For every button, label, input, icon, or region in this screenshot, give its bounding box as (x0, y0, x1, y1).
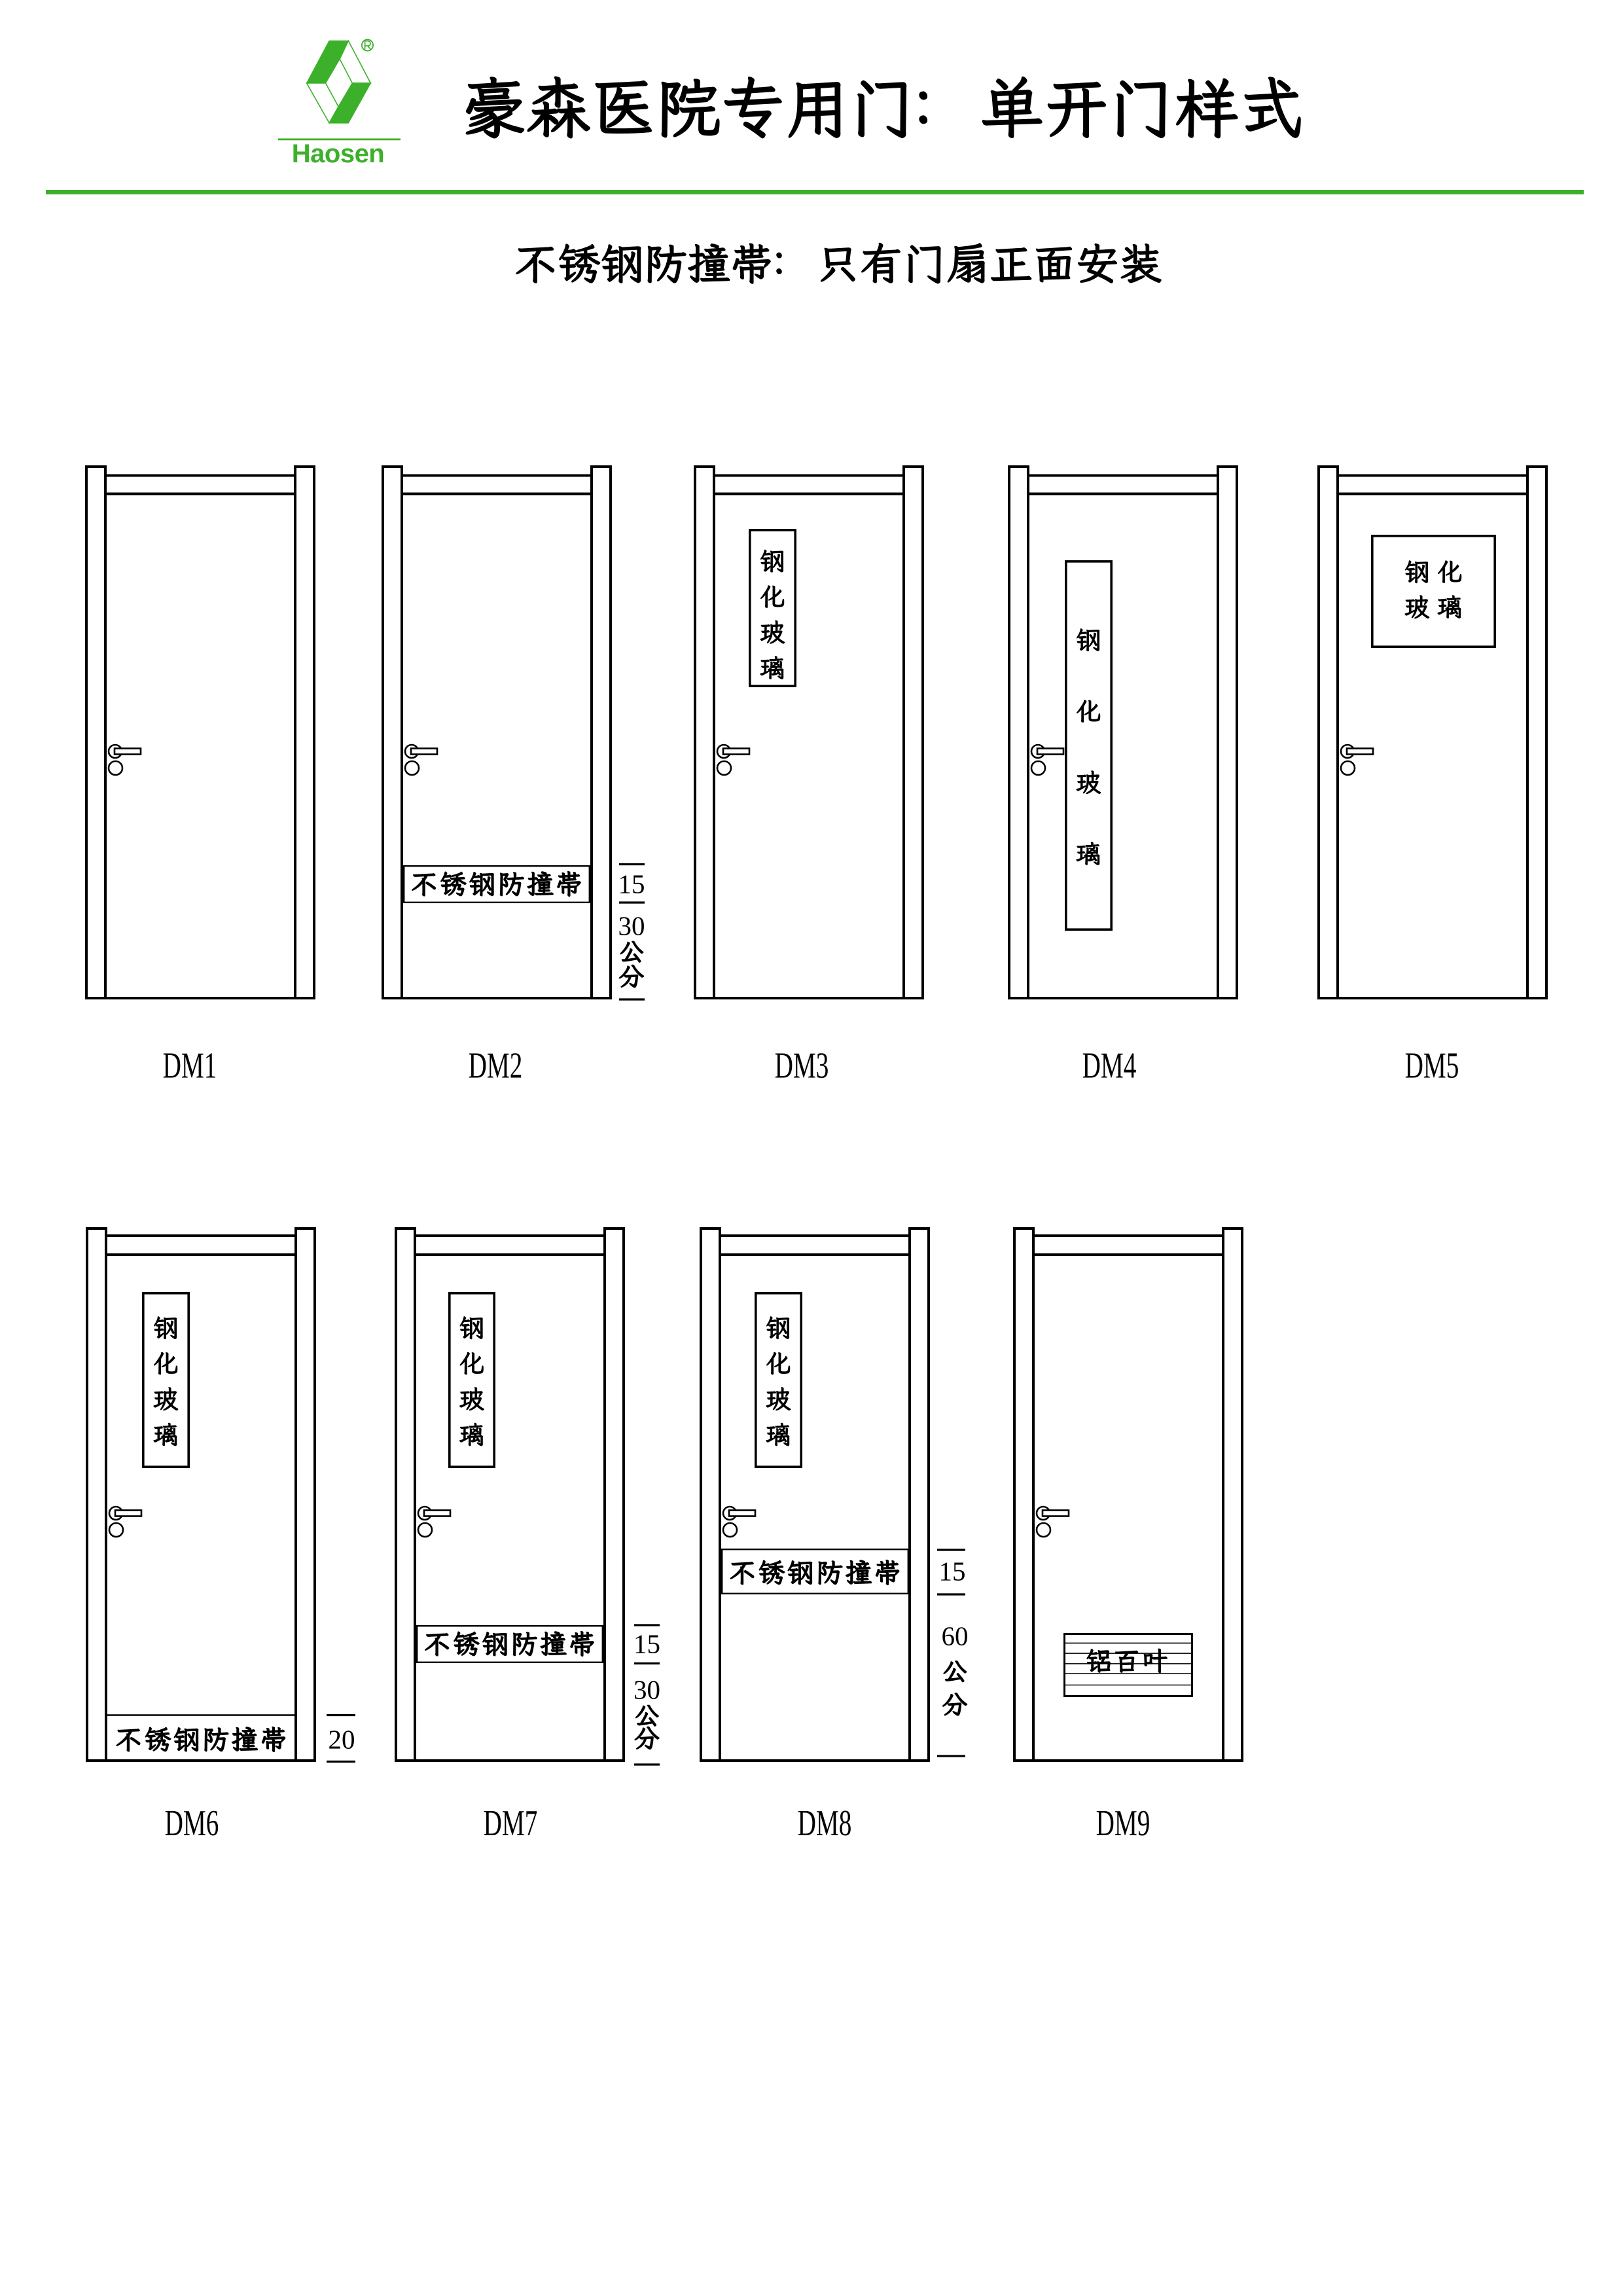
svg-text:15: 15 (939, 1556, 966, 1587)
svg-text:DM3: DM3 (775, 1046, 829, 1086)
svg-text:DM5: DM5 (1405, 1046, 1459, 1086)
svg-text:DM7: DM7 (484, 1803, 538, 1843)
svg-text:30: 30 (633, 1675, 660, 1705)
svg-text:60: 60 (942, 1621, 969, 1651)
svg-text:Haosen: Haosen (292, 139, 385, 168)
svg-text:DM2: DM2 (469, 1046, 523, 1086)
svg-text:DM4: DM4 (1082, 1046, 1137, 1086)
svg-text:15: 15 (618, 869, 645, 899)
svg-text:20: 20 (329, 1725, 355, 1755)
svg-text:15: 15 (633, 1629, 660, 1659)
svg-text:DM1: DM1 (163, 1046, 217, 1086)
svg-text:DM8: DM8 (798, 1803, 852, 1843)
svg-text:DM6: DM6 (165, 1803, 219, 1843)
svg-text:DM9: DM9 (1096, 1803, 1150, 1843)
svg-text:30: 30 (618, 911, 645, 941)
